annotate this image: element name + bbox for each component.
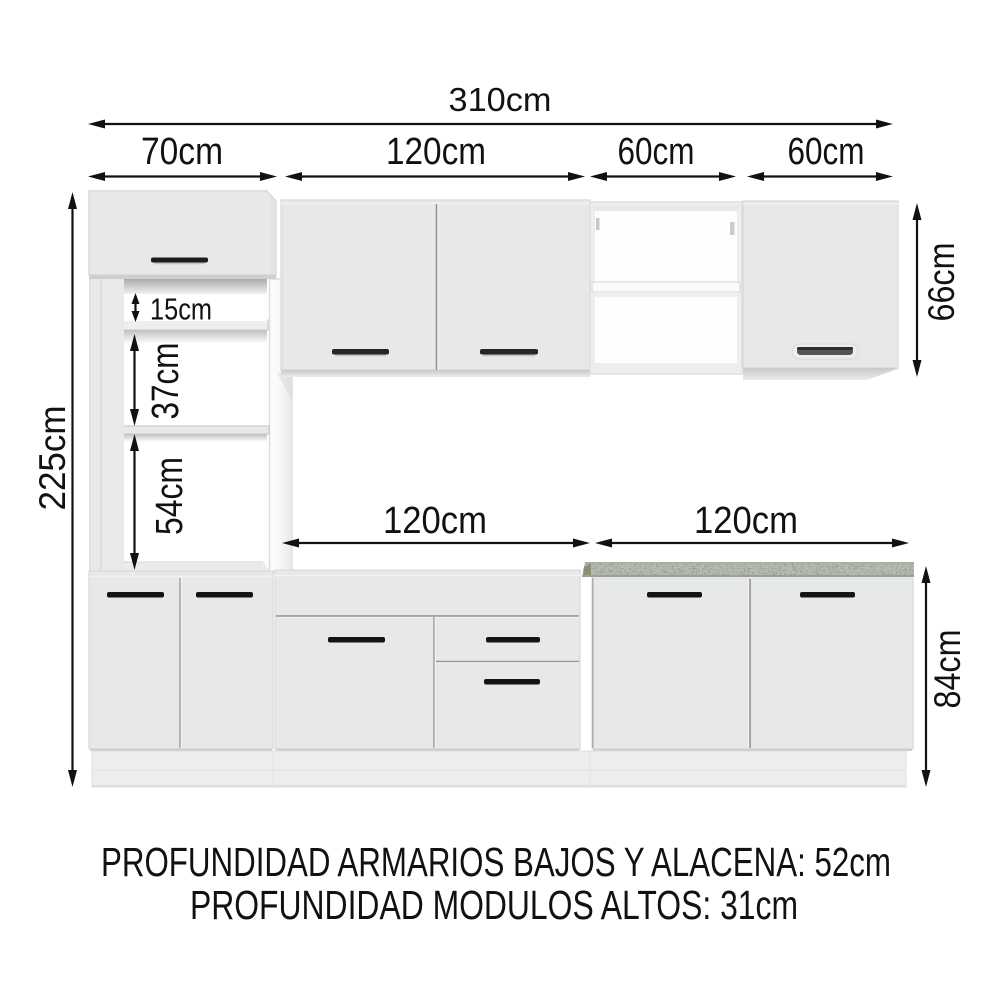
svg-text:37cm: 37cm [145,343,187,420]
svg-text:310cm: 310cm [449,81,552,118]
svg-text:70cm: 70cm [141,131,223,173]
svg-text:54cm: 54cm [149,457,191,535]
svg-text:120cm: 120cm [694,500,798,542]
svg-text:120cm: 120cm [383,500,487,542]
svg-text:PROFUNDIDAD MODULOS ALTOS: 31c: PROFUNDIDAD MODULOS ALTOS: 31cm [190,882,798,928]
svg-text:84cm: 84cm [927,630,968,709]
svg-text:60cm: 60cm [788,131,865,173]
svg-text:120cm: 120cm [386,131,486,173]
svg-text:66cm: 66cm [921,243,962,322]
svg-text:225cm: 225cm [32,406,73,511]
svg-text:60cm: 60cm [618,131,695,173]
svg-text:15cm: 15cm [150,292,212,327]
svg-text:PROFUNDIDAD ARMARIOS BAJOS Y A: PROFUNDIDAD ARMARIOS BAJOS Y ALACENA: 52… [101,839,891,885]
